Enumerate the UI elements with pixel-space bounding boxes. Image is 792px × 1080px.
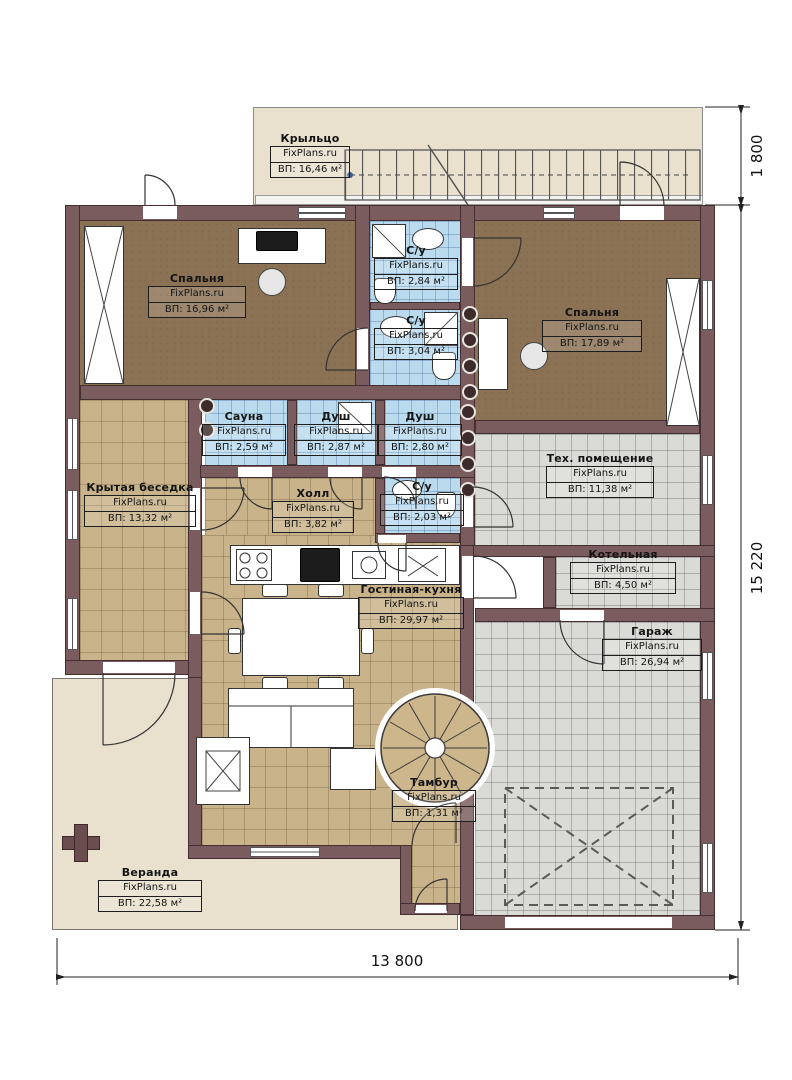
window-living-south <box>250 847 320 857</box>
room-gazebo-floor <box>80 400 188 662</box>
column-cross <box>74 824 88 862</box>
wall-gazebo-east <box>188 398 202 678</box>
window-right-3 <box>702 652 713 700</box>
dim-top-right: 1 800 <box>748 135 766 178</box>
kitchen-cabinet <box>398 548 446 582</box>
window-right-1 <box>702 280 713 330</box>
label-wc-mid: С/у FixPlans.ruВП: 3,04 м² <box>374 314 458 360</box>
label-garage: Гараж FixPlans.ruВП: 26,94 м² <box>602 625 702 671</box>
porch-step-strip <box>255 195 703 205</box>
door-opening-bedroom-left <box>357 328 368 370</box>
window-right-2 <box>702 455 713 505</box>
door-opening-shower-2 <box>382 467 416 477</box>
label-boiler: Котельная FixPlans.ruВП: 4,50 м² <box>570 548 676 594</box>
wall-boiler-west <box>543 557 556 608</box>
window-left-2 <box>67 490 78 540</box>
desk-bedroom-right <box>478 318 508 390</box>
label-wc-top: С/у FixPlans.ruВП: 2,84 м² <box>374 244 458 290</box>
door-opening-wc-hall <box>378 535 406 543</box>
wardrobe-left <box>84 226 124 384</box>
window-top-1 <box>298 207 346 219</box>
door-opening-porch <box>620 206 664 220</box>
dining-chair <box>318 584 344 597</box>
door-opening-sauna <box>238 467 272 477</box>
door-opening-boiler <box>560 610 604 621</box>
window-left-1 <box>67 418 78 470</box>
wall-bedroom-left-east <box>355 205 370 400</box>
door-opening-shower-1 <box>328 467 362 477</box>
door-opening-porch-left <box>143 206 177 219</box>
kitchen-sink <box>352 551 386 579</box>
dim-right: 15 220 <box>748 542 766 595</box>
wall-bedrooms-south <box>80 385 470 400</box>
label-tech: Тех. помещение FixPlans.ruВП: 11,38 м² <box>546 452 654 498</box>
garage-door-opening <box>505 917 672 928</box>
door-opening-veranda <box>103 662 175 673</box>
label-sauna: Сауна FixPlans.ruВП: 2,59 м² <box>202 410 286 456</box>
sofa-chaise <box>330 748 376 790</box>
window-left-3 <box>67 598 78 650</box>
door-opening-gazebo-2 <box>190 592 200 634</box>
label-wc-hall: С/у FixPlans.ruВП: 2,03 м² <box>380 480 464 526</box>
fridge <box>300 548 340 582</box>
wardrobe-right <box>666 278 700 426</box>
label-tambour: Тамбур FixPlans.ruВП: 1,31 м² <box>392 776 476 822</box>
label-bedroom-right: Спальня FixPlans.ruВП: 17,89 м² <box>542 306 642 352</box>
label-hall: Холл FixPlans.ruВП: 3,82 м² <box>272 487 354 533</box>
door-opening-tambour <box>415 905 447 913</box>
label-porch: Крыльцо FixPlans.ruВП: 16,46 м² <box>270 132 350 178</box>
label-veranda: Веранда FixPlans.ruВП: 22,58 м² <box>98 866 202 912</box>
fireplace <box>196 737 250 805</box>
dim-bottom: 13 800 <box>371 952 424 970</box>
printer-icon <box>256 231 298 251</box>
label-shower-2: Душ FixPlans.ruВП: 2,80 м² <box>378 410 462 456</box>
door-opening-bedroom-right <box>462 238 473 286</box>
floor-plan: 1 800 15 220 13 800 Крыльцо FixPlans.ruВ… <box>0 0 792 1080</box>
dining-chair <box>262 584 288 597</box>
label-bedroom-left: Спальня FixPlans.ruВП: 16,96 м² <box>148 272 246 318</box>
dining-chair <box>228 628 241 654</box>
dining-chair <box>361 628 374 654</box>
dining-table <box>242 598 360 676</box>
label-living: Гостиная-кухня FixPlans.ruВП: 29,97 м² <box>358 583 464 629</box>
window-top-2 <box>543 207 575 219</box>
room-tambour-floor <box>412 845 460 903</box>
stove <box>236 549 272 581</box>
label-shower-1: Душ FixPlans.ruВП: 2,87 м² <box>294 410 378 456</box>
window-right-4 <box>702 843 713 893</box>
label-gazebo: Крытая беседка FixPlans.ruВП: 13,32 м² <box>84 481 196 527</box>
chair-bedroom-left <box>258 268 286 296</box>
